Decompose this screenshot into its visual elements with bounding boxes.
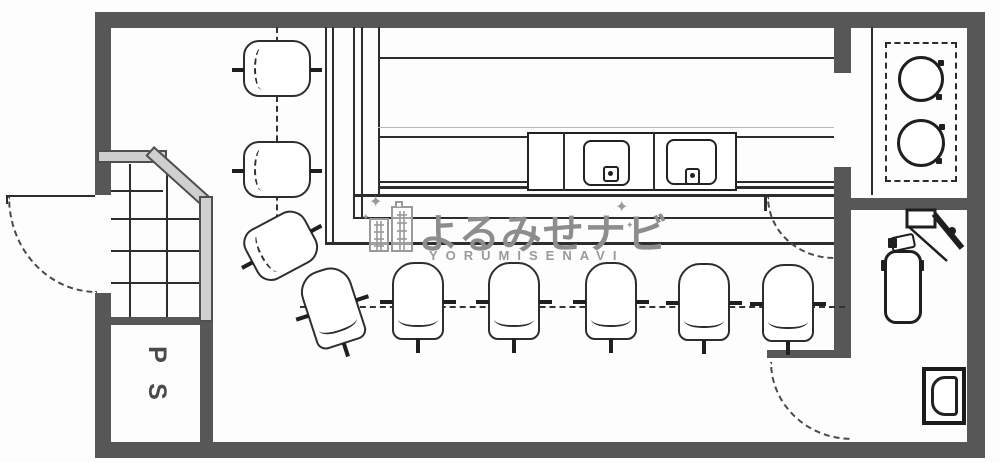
pipe-shaft-wall-right [200,317,213,442]
stair-tread [111,190,163,192]
water-heater-bracket [919,260,924,271]
kitchen-pass-door-arc [767,197,834,259]
bar-stool [392,262,444,340]
stove-burner-knob [938,60,944,66]
water-heater-bracket [881,260,886,271]
counter-left-edge-outer [325,27,327,245]
toilet-bowl [931,376,958,416]
kitchen-back-shelf [378,57,834,59]
bar-stool-tilted [295,262,369,352]
sparkle-icon: ✦ [362,213,370,222]
watermark-subtitle: YORUMISENAVI [429,248,624,263]
counter-left-back-outer [353,27,355,219]
stove-burner-knob [939,124,945,130]
stove-counter-edge [871,27,873,195]
counter-front-top-edge [353,194,834,197]
counter-chair [243,141,311,198]
bar-stool [762,264,814,342]
pipe-shaft-wall-top [97,317,213,325]
stair-tread [111,282,199,284]
counter-left-edge-inner [332,27,334,245]
pipe-shaft-label: P S [128,340,184,406]
bar-stool [678,263,730,341]
kitchen-light-line [378,127,834,128]
outer-wall-left-upper [95,12,111,195]
pipe-shaft-letter-p: P [142,346,171,363]
kitchen-wall-stub-top [834,27,851,73]
stair-stringer [166,164,168,317]
outer-wall-top [95,12,985,28]
restroom-wall-left [834,167,851,357]
pipe-shaft-letter-s: S [142,383,171,400]
water-heater-valve [888,238,897,248]
counter-left-back-inner [361,27,363,219]
sink-drain-2 [685,168,700,185]
entrance-door-arc [8,197,97,293]
sink-unit-divider [563,132,565,191]
stove-burner-knob [936,94,942,100]
sink-unit-divider [653,132,655,191]
stair-handrail-side [199,196,213,322]
outer-wall-right [967,12,985,458]
restroom-door-arc [770,362,852,440]
counter-chair [243,40,311,97]
floor-plan: P S [0,0,1000,463]
water-heater [884,250,922,324]
sparkle-icon: ✦ [369,195,382,211]
stair-tread [111,250,199,252]
bar-stool [488,262,540,340]
outer-wall-bottom [95,442,985,458]
bar-stool [585,262,637,340]
sink-drain-1 [603,166,619,182]
restroom-wall-stub [767,350,851,358]
kitchen-floor-edge [378,27,380,195]
stove-burner-knob [936,158,942,164]
stair-stringer [129,164,131,317]
stair-tread [111,218,199,220]
